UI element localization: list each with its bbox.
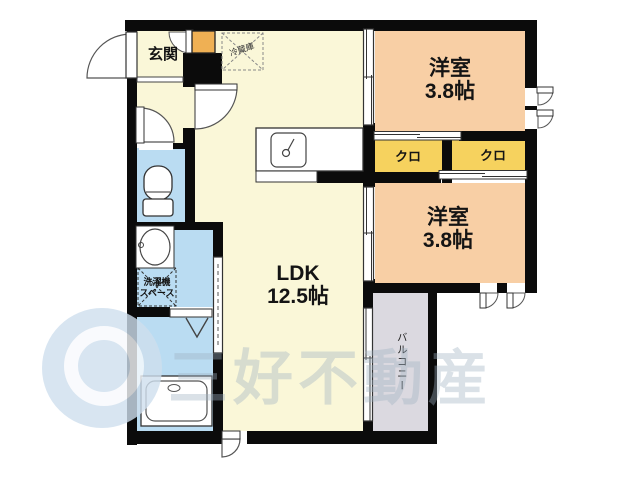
floorplan-drawing <box>0 0 640 480</box>
wall-top <box>125 20 537 31</box>
bedroom1-window-leaf-b <box>537 110 553 116</box>
wall-balcony-right <box>428 293 437 431</box>
closet2-label: クロ <box>480 149 506 163</box>
toilet-tank <box>143 199 173 216</box>
bedroom2-name: 洋室 <box>423 206 473 229</box>
ldk-size: 12.5帖 <box>267 285 329 308</box>
wall-bottom <box>127 431 437 444</box>
wall-balcony-window-top <box>363 293 373 308</box>
ldk-south-door-swing <box>222 439 240 457</box>
bedroom2-window-gap-b <box>507 283 525 293</box>
wall-genkan-block <box>183 53 222 87</box>
laundry-label: 洗濯機 スペース <box>140 277 175 300</box>
hall-doorway-floor <box>183 87 195 131</box>
ldk-name: LDK <box>267 262 329 285</box>
bedroom1-window-gap-b <box>525 110 537 129</box>
wall-toilet-right <box>185 148 195 230</box>
bedroom2-window-leaf-b <box>507 293 513 308</box>
bedroom2-label: 洋室 3.8帖 <box>423 206 473 252</box>
laundry-line2: スペース <box>140 288 175 299</box>
bedroom2-window-leaf-a <box>480 293 486 308</box>
balcony-label: バルコニー <box>395 332 407 392</box>
bathroom-doorway <box>170 309 212 317</box>
bedroom2-size: 3.8帖 <box>423 229 473 252</box>
toilet-door-leaf <box>136 107 144 143</box>
genkan-step-line <box>137 77 183 82</box>
wash-basin <box>140 229 170 265</box>
laundry-line1: 洗濯機 <box>140 277 175 288</box>
wall-bathroom-right <box>213 350 223 431</box>
wall-mid-column <box>363 123 375 187</box>
wall-right <box>525 31 537 293</box>
bedroom1-label: 洋室 3.8帖 <box>425 57 475 103</box>
bedroom1-window-leaf-a <box>537 87 553 93</box>
kitchen-counter-ledge <box>256 171 317 182</box>
entrance-door-swing <box>87 34 131 78</box>
wall-closet2-bottom-left <box>375 172 441 183</box>
wall-balcony-window-bottom <box>363 421 373 431</box>
bedroom1-window-gap-a <box>525 88 537 106</box>
closet1-label: クロ <box>395 150 421 164</box>
bedroom1-size: 3.8帖 <box>425 80 475 103</box>
genkan-label: 玄関 <box>148 47 178 64</box>
bathtub <box>141 376 212 426</box>
ldk-label: LDK 12.5帖 <box>267 262 329 308</box>
wall-kitchen-half <box>317 171 363 183</box>
toilet-bowl <box>144 166 172 200</box>
entrance-door-leaf <box>126 32 137 78</box>
wall-washroom-bath <box>127 307 170 317</box>
floorplan: 玄関 洋室 3.8帖 洋室 3.8帖 クロ クロ LDK 12.5帖 冷蔵庫 洗… <box>0 0 640 480</box>
balcony-window <box>364 308 373 421</box>
wall-closet1-top-right <box>459 131 525 141</box>
shoe-cabinet <box>192 31 215 53</box>
bedroom2-window-gap-a <box>480 283 497 293</box>
wall-washroom-right <box>213 230 223 258</box>
hall-ldk-door-leaf <box>195 84 237 90</box>
closet2-sliding-door <box>439 171 527 180</box>
closet1-sliding-door <box>374 132 461 141</box>
bedroom1-name: 洋室 <box>425 57 475 80</box>
ldk-south-door-leaf <box>222 431 240 439</box>
